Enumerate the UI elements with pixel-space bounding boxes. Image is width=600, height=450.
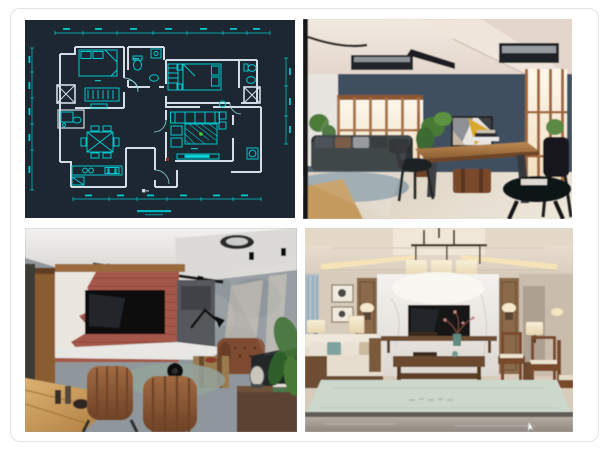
teal-cushion (327, 342, 341, 355)
red-item (205, 357, 217, 363)
vase (453, 334, 461, 346)
left-dark-frame (25, 264, 35, 396)
new-chinese-living-room-photo[interactable] (305, 228, 573, 432)
entry-red-mark (166, 158, 169, 161)
bar-stool-2 (143, 376, 197, 432)
tray (409, 332, 437, 336)
suitcase (453, 169, 491, 193)
ac-grille-left (354, 57, 410, 62)
green-books (273, 388, 288, 392)
lantern (250, 366, 264, 388)
plan-background (25, 20, 295, 218)
wood-ledge (55, 264, 185, 272)
left-dark-edge (303, 19, 308, 219)
chinese-photo-art (305, 228, 573, 432)
ac-grille-right (502, 46, 556, 53)
wall-glow (392, 272, 484, 304)
industrial-living-room-photo[interactable] (25, 228, 297, 432)
plan-title-text-blur (137, 210, 171, 212)
teal-pot (452, 351, 458, 357)
industrial-photo-art (25, 228, 297, 432)
sconce-light (360, 303, 374, 313)
shelf-inner (181, 286, 211, 310)
floor-shadow-band (305, 412, 573, 417)
celadon-rug (305, 380, 573, 416)
floor-plan-image[interactable] (25, 20, 295, 218)
corridor-lamp (551, 308, 563, 316)
sofa-wood-arm (369, 338, 381, 372)
loft-living-room-photo[interactable] (303, 19, 572, 219)
cream-sofa (305, 334, 383, 388)
ceiling-lamp (220, 235, 254, 249)
door-rail (35, 268, 55, 274)
tv (85, 290, 165, 334)
loft-photo-art (303, 19, 572, 219)
wood-door (35, 268, 55, 392)
floor-plan-drawing (25, 20, 295, 218)
plant-right (546, 119, 564, 135)
rug-center-accent (199, 132, 203, 136)
sconce-light (502, 303, 516, 313)
speaker-cone (172, 368, 178, 374)
table-tray (413, 352, 437, 356)
